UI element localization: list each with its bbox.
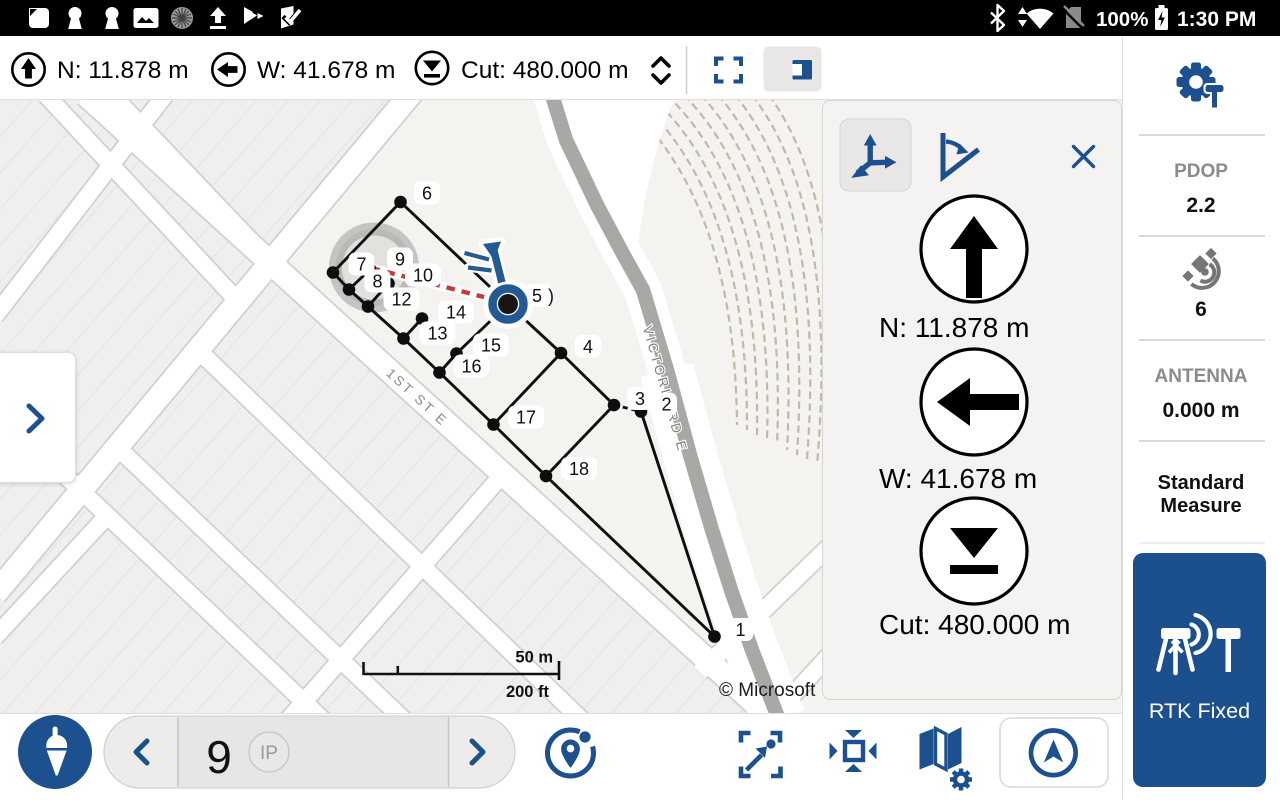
svg-text:PDOP: PDOP	[1174, 161, 1228, 182]
svg-text:10: 10	[413, 266, 433, 286]
svg-text:100%: 100%	[1096, 8, 1148, 31]
svg-text:0.000 m: 0.000 m	[1162, 399, 1239, 422]
svg-text:2.2: 2.2	[1186, 194, 1215, 217]
svg-text:2: 2	[661, 395, 671, 415]
svg-text:8: 8	[372, 272, 382, 292]
svg-text:15: 15	[481, 336, 501, 356]
svg-text:12: 12	[391, 290, 411, 310]
svg-text:9: 9	[395, 250, 405, 270]
svg-text:13: 13	[427, 324, 447, 344]
svg-text:9: 9	[206, 731, 232, 783]
svg-text:© Microsoft: © Microsoft	[719, 680, 816, 701]
svg-text:14: 14	[446, 303, 466, 323]
svg-text:ANTENNA: ANTENNA	[1155, 366, 1248, 387]
svg-text:W: 41.678 m: W: 41.678 m	[257, 57, 395, 84]
svg-text:3: 3	[635, 389, 645, 409]
svg-text:5: 5	[532, 286, 542, 306]
svg-text:6: 6	[422, 184, 432, 204]
svg-text:1: 1	[735, 620, 745, 640]
svg-text:1:30 PM: 1:30 PM	[1177, 8, 1256, 31]
svg-text:Cut: 480.000 m: Cut: 480.000 m	[879, 609, 1070, 640]
svg-text:Measure: Measure	[1160, 495, 1241, 517]
svg-text:18: 18	[569, 459, 589, 479]
svg-text:16: 16	[461, 357, 481, 377]
svg-text:Standard: Standard	[1158, 472, 1245, 494]
svg-text:6: 6	[1195, 298, 1207, 321]
svg-text:N: 11.878 m: N: 11.878 m	[879, 312, 1029, 343]
svg-text:50 m: 50 m	[515, 649, 553, 667]
svg-text:17: 17	[516, 408, 536, 428]
svg-text:N: 11.878 m: N: 11.878 m	[57, 57, 189, 84]
svg-text:Cut: 480.000 m: Cut: 480.000 m	[461, 57, 629, 84]
svg-text:): )	[548, 286, 554, 306]
svg-text:7: 7	[356, 255, 366, 275]
svg-text:4: 4	[583, 337, 593, 357]
svg-text:200 ft: 200 ft	[506, 683, 550, 701]
svg-text:W: 41.678 m: W: 41.678 m	[879, 463, 1037, 494]
svg-text:RTK Fixed: RTK Fixed	[1149, 699, 1250, 723]
svg-text:IP: IP	[260, 743, 278, 764]
